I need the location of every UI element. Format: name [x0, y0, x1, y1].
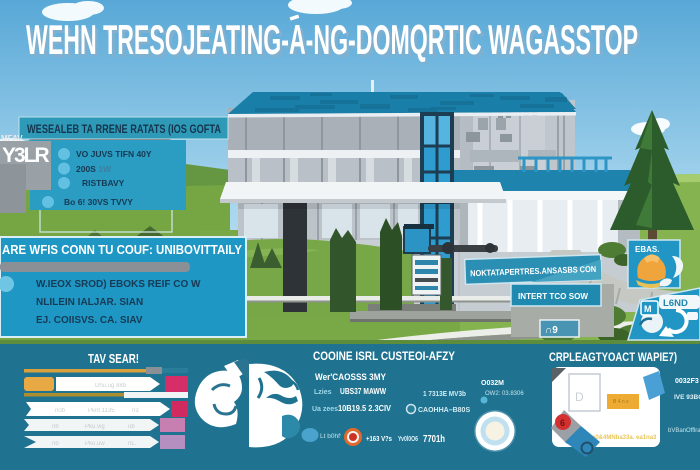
svg-text:ub: ub	[128, 424, 135, 430]
svg-text:ARE WFIS CONN TU COUF: UNIBOVI: ARE WFIS CONN TU COUF: UNIBOVITTAILY	[2, 243, 243, 257]
svg-text:L6ND: L6ND	[663, 298, 688, 309]
svg-text:10B19.5 2.3CIV: 10B19.5 2.3CIV	[338, 403, 391, 413]
svg-text:B 4 n s: B 4 n s	[613, 399, 629, 405]
svg-text:D: D	[575, 390, 584, 404]
svg-text:7701h: 7701h	[423, 434, 445, 445]
svg-text:TAV SEAR!: TAV SEAR!	[88, 351, 139, 366]
svg-text:n3: n3	[132, 408, 139, 414]
svg-text:a0&4MNba33a. ea1na3: a0&4MNba33a. ea1na3	[592, 435, 657, 441]
svg-text:CAOHHA–B80S: CAOHHA–B80S	[418, 407, 470, 414]
svg-text:+163 V?s: +163 V?s	[366, 434, 392, 443]
svg-text:Pknt 1135: Pknt 1135	[88, 408, 115, 414]
svg-text:INTERT TCO SOW: INTERT TCO SOW	[518, 291, 589, 301]
svg-text:EBAS.: EBAS.	[635, 245, 659, 254]
svg-text:n0b: n0b	[55, 408, 66, 414]
svg-text:6: 6	[560, 418, 565, 428]
svg-text:O032M: O032M	[481, 380, 504, 387]
svg-text:MFAV: MFAV	[1, 134, 23, 143]
svg-text:UBS37 MAWW: UBS37 MAWW	[340, 386, 387, 396]
svg-text:EJ. COIISVS. CA. SIAV: EJ. COIISVS. CA. SIAV	[36, 315, 143, 326]
svg-text:M: M	[644, 304, 652, 314]
svg-text:bVBanOfflra: bVBanOfflra	[668, 428, 700, 434]
svg-text:W.IEOX SROD) EBOKS REIF CO W: W.IEOX SROD) EBOKS REIF CO W	[36, 279, 201, 290]
svg-text:nb: nb	[52, 424, 59, 430]
svg-text:VO JUVS TIFN 40Y: VO JUVS TIFN 40Y	[76, 149, 152, 159]
svg-text:RISTBAVY: RISTBAVY	[82, 178, 125, 188]
svg-text:WESEALEB TA RRENE RATATS (IOS: WESEALEB TA RRENE RATATS (IOS GOFTA	[27, 124, 221, 136]
svg-text:Wer'CAOSSS 3MY: Wer'CAOSSS 3MY	[315, 372, 387, 383]
svg-text:CRPLEAGTYOACT WAPIE7): CRPLEAGTYOACT WAPIE7)	[549, 352, 677, 364]
svg-text:COOINE ISRL CUSTEOI-AFZY: COOINE ISRL CUSTEOI-AFZY	[313, 349, 455, 363]
svg-text:IVE 93BC: IVE 93BC	[674, 394, 700, 401]
svg-text:Yv0l0O6: Yv0l0O6	[398, 436, 418, 443]
svg-text:200S 1W: 200S 1W	[76, 164, 112, 174]
svg-text:Ua zees: Ua zees	[312, 406, 338, 413]
svg-text:nL.: nL.	[128, 441, 137, 447]
svg-text:Y3LR: Y3LR	[2, 144, 50, 167]
svg-text:OW2: 03.8306: OW2: 03.8306	[485, 391, 524, 397]
svg-text:WEHN TRESOJEATING-A-NG-DOMQRTI: WEHN TRESOJEATING-A-NG-DOMQRTIC WAGASSTO…	[26, 16, 638, 63]
svg-text:1 7313E MV3b: 1 7313E MV3b	[423, 391, 466, 398]
svg-text:∩9: ∩9	[545, 325, 558, 336]
svg-text:Dhu.ug 88b: Dhu.ug 88b	[95, 383, 127, 389]
svg-text:Pku.uw: Pku.uw	[85, 441, 105, 447]
svg-text:Lt b0hf': Lt b0hf'	[320, 433, 341, 440]
svg-text:NLILEIN IALJAR. SIAN: NLILEIN IALJAR. SIAN	[36, 297, 143, 308]
svg-text:Pku.vig: Pku.vig	[85, 424, 105, 430]
svg-text:0032F3: 0032F3	[675, 378, 699, 385]
svg-text:Bo 6! 30VS TVVY: Bo 6! 30VS TVVY	[64, 197, 133, 207]
svg-text:Lzies: Lzies	[314, 389, 332, 396]
svg-text:nb: nb	[52, 441, 59, 447]
